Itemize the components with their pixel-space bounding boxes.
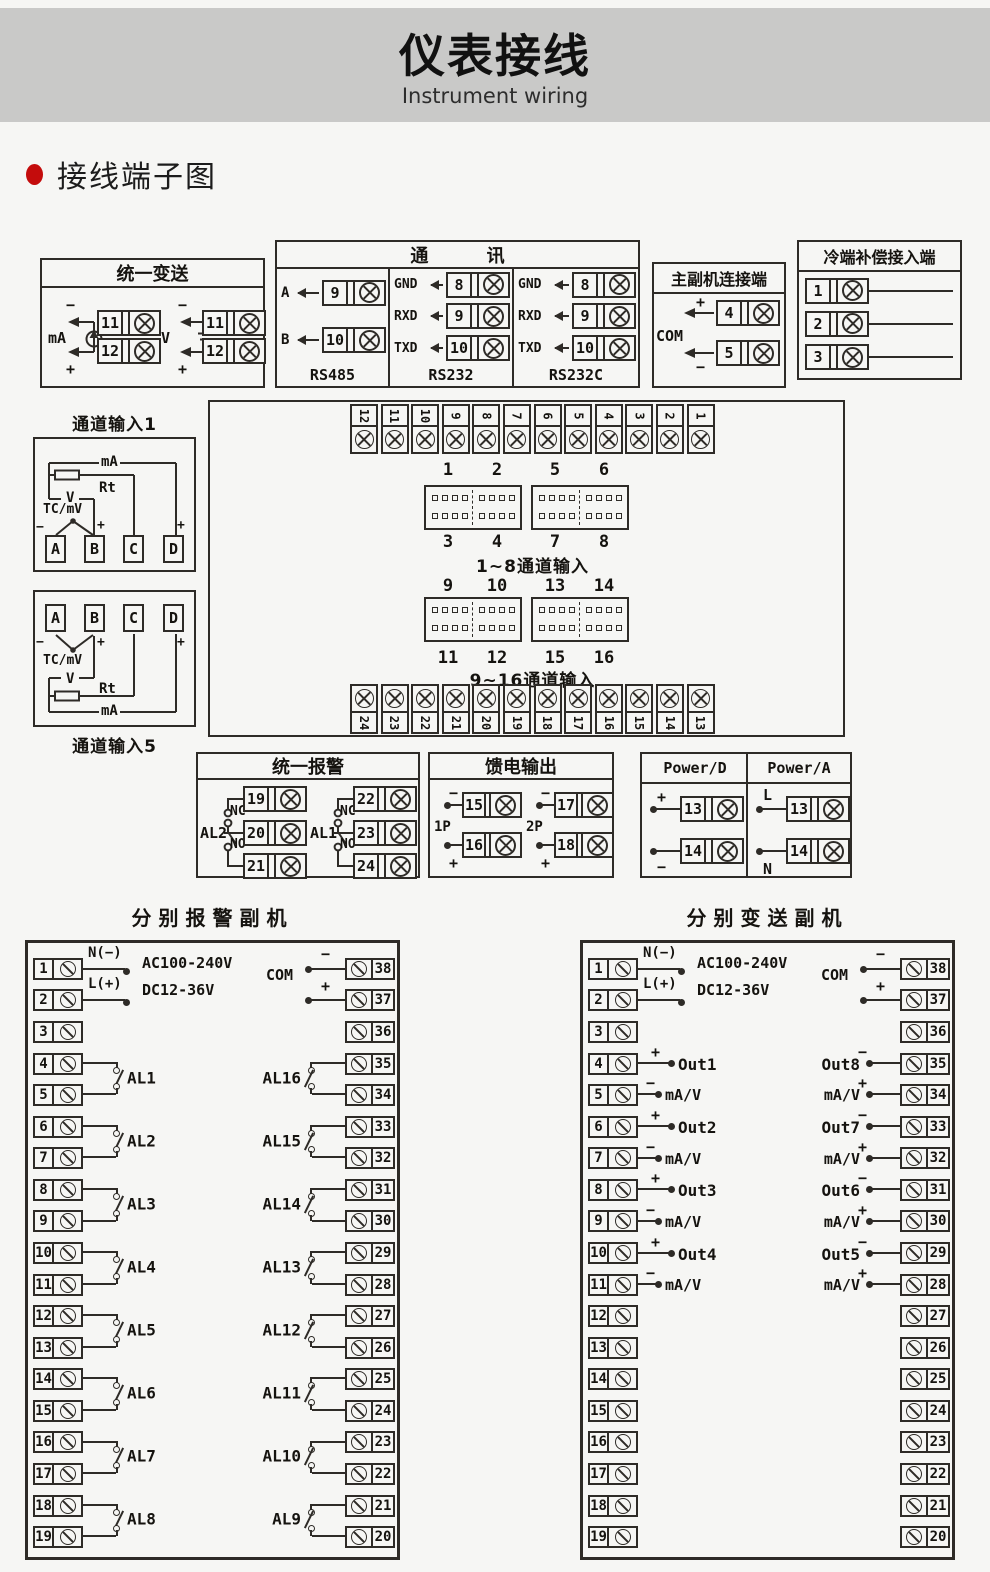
screw-icon — [60, 1213, 76, 1229]
screw-icon — [60, 1371, 76, 1387]
connector-pin — [569, 625, 575, 631]
screw-terminal: 33 — [900, 1116, 950, 1138]
screw-terminal: 4 — [588, 1053, 638, 1075]
terminal-row: 31 — [900, 1174, 950, 1206]
alarm-terminals: 222324 — [353, 780, 417, 876]
terminal-row: 28 — [900, 1269, 950, 1301]
terminal-number: 10 — [590, 1244, 609, 1262]
terminal-row: 3 — [33, 1016, 83, 1048]
output-wiring: − Out5 + mA/V — [783, 1237, 900, 1300]
plus-sign: + — [651, 1045, 660, 1060]
screw-icon — [823, 841, 844, 862]
terminal-number: 21 — [371, 1497, 393, 1515]
wire — [312, 1441, 345, 1443]
wire — [864, 999, 900, 1001]
terminal-row: 24 — [345, 1395, 395, 1427]
terminal-row: 2 — [588, 985, 638, 1017]
screw-terminal: 4 — [33, 1053, 83, 1075]
terminal-row: 35 — [345, 1048, 395, 1080]
wire-row: 黑线 1 — [805, 278, 956, 304]
pin-number: 3 — [431, 532, 465, 552]
screw-terminal: 17 — [588, 1463, 638, 1485]
connector-pin — [489, 495, 495, 501]
minus-sign: − — [657, 860, 666, 875]
comm-row: GND 8 — [394, 272, 510, 298]
screw-icon — [569, 430, 588, 449]
screw-terminal: 13 — [588, 1337, 638, 1359]
pin-row — [533, 607, 627, 613]
screw-icon — [615, 1245, 631, 1261]
contact-icon — [113, 1256, 120, 1263]
screw-icon — [587, 795, 608, 816]
connector-pin — [559, 607, 565, 613]
red-bullet-icon — [26, 164, 43, 185]
pin-row — [533, 625, 627, 631]
screw-icon — [842, 280, 863, 301]
comm-box: 通 讯 A 9 B 10 — [275, 240, 640, 388]
screw-icon — [906, 1371, 922, 1387]
screw-icon — [842, 347, 863, 368]
screw-icon — [615, 1434, 631, 1450]
wire-dot — [866, 1155, 873, 1162]
wire — [83, 1220, 116, 1222]
screw-terminal: 29 — [900, 1242, 950, 1264]
line-label: L(+) — [643, 977, 677, 991]
terminal-number: 1 — [590, 960, 609, 978]
pin-number: 13 — [538, 576, 572, 596]
terminal-row: 26 — [900, 1332, 950, 1364]
wire — [312, 1377, 345, 1379]
connector-pin — [596, 513, 602, 519]
connector-pin — [559, 495, 565, 501]
screw-icon — [615, 1087, 631, 1103]
screw-terminal: 27 — [900, 1305, 950, 1327]
screw-terminal: 34 — [900, 1084, 950, 1106]
screw-terminal: 26 — [900, 1337, 950, 1359]
v-group-label: V — [161, 331, 170, 346]
terminal-row: 14 — [33, 1364, 83, 1396]
terminal-number: 17 — [590, 1465, 609, 1483]
screw-icon — [630, 430, 649, 449]
screw-terminal: 22 — [353, 786, 417, 812]
pin-row — [533, 513, 627, 519]
wire-dot — [866, 1123, 873, 1130]
feed-output-group: − + 1P 1516 — [434, 780, 524, 876]
plus-sign: + — [66, 362, 75, 377]
page-subtitle: Instrument wiring — [0, 84, 990, 108]
wire — [83, 1314, 116, 1316]
pin-number: 4 — [480, 532, 514, 552]
screw-terminal: 9 — [572, 303, 636, 329]
connector-pin — [616, 607, 622, 613]
terminal-number: 12 — [204, 340, 228, 362]
screw-icon — [351, 1466, 367, 1482]
alarm-switch: AL3 — [83, 1173, 208, 1236]
strip-terminal: 23 — [381, 684, 409, 734]
screw-terminal: 20 — [900, 1526, 950, 1548]
minus-sign: − — [646, 1203, 655, 1218]
screw-terminal: 12 — [202, 338, 266, 364]
alarm-label: AL9 — [272, 1510, 301, 1529]
wire — [116, 1215, 118, 1221]
connector-pin — [596, 495, 602, 501]
terminal-number: 18 — [35, 1497, 54, 1515]
screw-terminal: 36 — [345, 1021, 395, 1043]
screw-terminal: 1 — [33, 958, 83, 980]
screw-icon — [446, 689, 465, 708]
wire-dot — [655, 1281, 662, 1288]
minus-sign: − — [646, 1076, 655, 1091]
dc-voltage-label: DC12-36V — [142, 983, 214, 998]
pin-row — [426, 495, 520, 501]
channel-terminal: C — [123, 535, 144, 563]
terminal-number: 31 — [926, 1181, 948, 1199]
alarm-label: AL11 — [262, 1384, 301, 1403]
screw-terminal: 32 — [345, 1147, 395, 1169]
wire — [83, 1156, 116, 1158]
terminal-row: 25 — [345, 1364, 395, 1396]
terminal-number: 11 — [204, 312, 228, 334]
contact-icon — [113, 1193, 120, 1200]
screw-icon — [351, 1213, 367, 1229]
screw-terminal: 13 — [33, 1337, 83, 1359]
screw-terminal: 31 — [345, 1179, 395, 1201]
screw-icon — [351, 1087, 367, 1103]
terminal-number: 1 — [807, 280, 831, 302]
terminal-number: 31 — [371, 1181, 393, 1199]
wire — [83, 1346, 116, 1348]
v-label: V — [64, 672, 76, 686]
screw-terminal: 22 — [900, 1463, 950, 1485]
screw-icon — [351, 1245, 367, 1261]
feed-output-box: 馈电输出 − + 1P 1516 — [428, 752, 614, 878]
terminal-number: 35 — [926, 1055, 948, 1073]
screw-icon — [416, 689, 435, 708]
connector-pin — [499, 495, 505, 501]
plus-sign: + — [449, 856, 458, 871]
output-label: Out4 — [678, 1245, 717, 1264]
terminal-number: 18 — [536, 711, 560, 732]
terminal-number: 8 — [574, 274, 598, 296]
pin-number: 14 — [587, 576, 621, 596]
connector-pin — [452, 513, 458, 519]
wire-dot — [866, 1218, 873, 1225]
screw-terminal: 15 — [462, 792, 522, 818]
terminal-number: 9 — [590, 1212, 609, 1230]
screw-icon — [390, 856, 411, 877]
terminal-row: 33 — [900, 1111, 950, 1143]
output-label: Out2 — [678, 1118, 717, 1137]
terminal-number: 22 — [355, 788, 379, 810]
ma-label: mA — [99, 704, 120, 718]
terminal-row: 28 — [345, 1269, 395, 1301]
screw-icon — [717, 799, 738, 820]
screw-icon — [483, 338, 504, 359]
terminal-number: 3 — [627, 406, 651, 427]
wire — [83, 1251, 116, 1253]
left-arrow-icon — [298, 292, 319, 294]
screw-icon — [630, 689, 649, 708]
terminal-number: 17 — [556, 794, 578, 816]
terminal-row: 3 — [588, 1016, 638, 1048]
screw-terminal: 19 — [243, 786, 307, 812]
left-outputs: + Out1 − mA/V + Out2 − mA/V + Out3 — [638, 1047, 788, 1300]
terminal-number: 1 — [689, 406, 713, 427]
section-heading: 接线端子图 — [26, 152, 217, 196]
terminal-number: 15 — [590, 1402, 609, 1420]
power-d-title: Power/D — [642, 759, 748, 777]
comm-rows: GND 8 RXD 9 TXD 10 — [518, 269, 636, 364]
connector-pin — [559, 513, 565, 519]
terminal-row: 24 — [900, 1395, 950, 1427]
terminal-number: 19 — [590, 1528, 609, 1546]
connector-pin — [616, 625, 622, 631]
transmit-slave-title: 分别变送副机 — [580, 902, 955, 931]
screw-terminal: 11 — [33, 1274, 83, 1296]
terminal-row: 32 — [900, 1142, 950, 1174]
terminal-number: 21 — [444, 711, 468, 732]
screw-icon — [280, 856, 301, 877]
screw-icon — [823, 799, 844, 820]
screw-terminal: 37 — [345, 989, 395, 1011]
wire — [539, 844, 554, 846]
com-label: COM — [821, 968, 848, 983]
screw-icon — [615, 1024, 631, 1040]
screw-icon — [906, 1245, 922, 1261]
comm-row: A 9 — [281, 280, 386, 306]
terminal-row: 34 — [345, 1079, 395, 1111]
signal-type-label: mA/V — [824, 1150, 860, 1168]
minus-sign: − — [178, 298, 187, 313]
wire — [83, 1125, 116, 1127]
screw-terminal: 38 — [345, 958, 395, 980]
terminal-row: 31 — [345, 1174, 395, 1206]
ac-voltage-label: AC100-240V — [697, 956, 787, 971]
screw-terminal: 3 — [588, 1021, 638, 1043]
output-label: Out6 — [821, 1181, 860, 1200]
screw-terminal: 2 — [805, 311, 869, 337]
strip-terminal: 22 — [411, 684, 439, 734]
screw-icon — [351, 1056, 367, 1072]
screw-icon — [906, 1213, 922, 1229]
terminal-number: 14 — [590, 1370, 609, 1388]
screw-terminal: 14 — [786, 838, 850, 864]
output-wiring: − Out7 + mA/V — [783, 1110, 900, 1173]
left-terminal-column: 12345678910111213141516171819 — [588, 953, 638, 1553]
strip-terminal: 4 — [595, 404, 623, 454]
terminal-row: 5 — [588, 1079, 638, 1111]
screw-terminal: 23 — [345, 1431, 395, 1453]
page-title: 仪表接线 — [0, 20, 990, 86]
screw-terminal: 11 — [97, 310, 161, 336]
signal-label: A — [281, 285, 297, 301]
terminal-number: 7 — [35, 1149, 54, 1167]
strip-terminal: 20 — [472, 684, 500, 734]
wire — [83, 1188, 116, 1190]
screw-icon — [615, 1119, 631, 1135]
neutral-label: N(−) — [88, 946, 122, 960]
connector-pin — [499, 513, 505, 519]
screw-terminal: 7 — [33, 1147, 83, 1169]
plus-sign: + — [651, 1108, 660, 1123]
terminal-number: 36 — [926, 1023, 948, 1041]
screw-terminal: 8 — [33, 1179, 83, 1201]
output-label: Out1 — [678, 1055, 717, 1074]
screw-icon — [483, 306, 504, 327]
screw-icon — [906, 992, 922, 1008]
screw-icon — [609, 306, 630, 327]
feed-terminals: 1718 — [554, 780, 614, 876]
pin-number: 7 — [538, 532, 572, 552]
strip-terminal: 6 — [534, 404, 562, 454]
terminal-number: 19 — [35, 1528, 54, 1546]
terminal-number: 30 — [926, 1212, 948, 1230]
unified-transmit-content: mA − + V − + 1112 1112 — [42, 288, 263, 386]
screw-icon — [60, 1308, 76, 1324]
wire — [638, 1062, 671, 1064]
connector-pin — [539, 607, 545, 613]
plus-sign: + — [97, 636, 105, 649]
neutral-sign: N — [763, 862, 772, 877]
alarm-switch: AL14 — [220, 1173, 345, 1236]
strip-terminal: 16 — [595, 684, 623, 734]
screw-icon — [906, 1150, 922, 1166]
terminal-row: 13 — [588, 1332, 638, 1364]
screw-terminal: 33 — [345, 1116, 395, 1138]
terminal-number: 22 — [413, 711, 437, 732]
terminal-number: 13 — [682, 798, 706, 820]
minus-sign: − — [696, 360, 705, 375]
signal-label: RXD — [518, 309, 554, 324]
ma-label: mA — [99, 455, 120, 469]
terminal-number: 30 — [371, 1212, 393, 1230]
terminal-number: 16 — [35, 1433, 54, 1451]
signal-type-label: mA/V — [665, 1276, 701, 1294]
terminal-row: 22 — [900, 1458, 950, 1490]
screw-icon — [351, 1024, 367, 1040]
screw-icon — [60, 1182, 76, 1198]
alarm-switch: AL11 — [220, 1363, 345, 1426]
screw-terminal: 2 — [33, 989, 83, 1011]
screw-icon — [717, 841, 738, 862]
terminal-number: 11 — [590, 1276, 609, 1294]
connector-pin — [432, 495, 438, 501]
signal-type-label: mA/V — [824, 1086, 860, 1104]
wire — [312, 1504, 345, 1506]
screw-terminal: 25 — [900, 1368, 950, 1390]
pin-number: 16 — [587, 648, 621, 668]
connector-pin — [549, 625, 555, 631]
terminal-number: 14 — [658, 711, 682, 732]
screw-terminal: 1 — [588, 958, 638, 980]
channel-terminal: C — [123, 604, 144, 632]
terminal-number: 23 — [383, 711, 407, 732]
screw-icon — [615, 1277, 631, 1293]
wire — [312, 1535, 345, 1537]
terminal-row: 8 — [33, 1174, 83, 1206]
terminal-number: 12 — [35, 1307, 54, 1325]
screw-icon — [390, 823, 411, 844]
screw-terminal: 12 — [33, 1305, 83, 1327]
screw-terminal: 36 — [900, 1021, 950, 1043]
strip-terminal: 11 — [381, 404, 409, 454]
terminal-number: 8 — [448, 274, 472, 296]
alarm-label: AL3 — [127, 1194, 156, 1213]
screw-icon — [351, 1308, 367, 1324]
left-alarm-switches: AL1 AL2 AL3 — [83, 1047, 208, 1552]
screw-icon — [355, 689, 374, 708]
pin-number: 10 — [480, 576, 514, 596]
terminal-number: 34 — [371, 1086, 393, 1104]
channel-input-5-title: 通道输入5 — [33, 732, 196, 757]
strip-terminal: 9 — [442, 404, 470, 454]
terminal-number: 15 — [35, 1402, 54, 1420]
terminal-row: 38 — [900, 953, 950, 985]
channel-terminal: D — [163, 535, 184, 563]
channel-input-1-box: mA Rt V TC/mV − + + ABCD — [33, 437, 196, 572]
terminal-number: 35 — [371, 1055, 393, 1073]
transmit-slave-box: 12345678910111213141516171819 3837363534… — [580, 940, 955, 1560]
screw-icon — [416, 430, 435, 449]
plus-sign: + — [657, 790, 666, 805]
connector-pin — [606, 607, 612, 613]
wire — [870, 1220, 900, 1222]
section-label: 接线端子图 — [57, 152, 217, 196]
terminal-row: 18 — [588, 1490, 638, 1522]
terminal-row: 4 — [588, 1048, 638, 1080]
plus-sign: + — [321, 979, 330, 994]
wire — [870, 1157, 900, 1159]
screw-terminal: 15 — [588, 1400, 638, 1422]
screw-icon — [906, 1529, 922, 1545]
pin-number: 1 — [431, 460, 465, 480]
comm-rows: A 9 B 10 — [281, 269, 386, 364]
terminal-row: 1 — [588, 953, 638, 985]
terminal-number: 22 — [371, 1465, 393, 1483]
terminal-number: 15 — [464, 794, 486, 816]
terminal-number: 3 — [35, 1023, 54, 1041]
screw-terminal: 7 — [588, 1147, 638, 1169]
terminal-number: 12 — [99, 340, 123, 362]
terminal-row: 37 — [900, 985, 950, 1017]
screw-icon — [60, 1087, 76, 1103]
connector-pin — [479, 607, 485, 613]
screw-terminal: 18 — [33, 1495, 83, 1517]
alarm-relay-group: NC NO AL2 192021 — [200, 780, 312, 876]
screw-terminal: 26 — [345, 1337, 395, 1359]
wire — [312, 1156, 345, 1158]
power-d-terminals: 1314 — [680, 782, 744, 876]
signal-label: TXD — [394, 341, 430, 356]
wire — [864, 968, 900, 970]
connector-pin — [606, 513, 612, 519]
screw-icon — [569, 689, 588, 708]
wire-dot — [668, 1123, 675, 1130]
wire — [312, 1472, 345, 1474]
wire-dot — [866, 1281, 873, 1288]
terminal-number: 1 — [35, 960, 54, 978]
alarm-slave-title: 分别报警副机 — [25, 902, 400, 931]
connector-pin — [452, 495, 458, 501]
terminal-number: 10 — [35, 1244, 54, 1262]
comm-column: A 9 B 10 RS485 — [277, 269, 388, 386]
wire — [653, 808, 680, 810]
screw-icon — [60, 1466, 76, 1482]
wire-dot — [668, 1250, 675, 1257]
terminal-number: 9 — [35, 1212, 54, 1230]
screw-icon — [60, 1150, 76, 1166]
screw-icon — [507, 689, 526, 708]
